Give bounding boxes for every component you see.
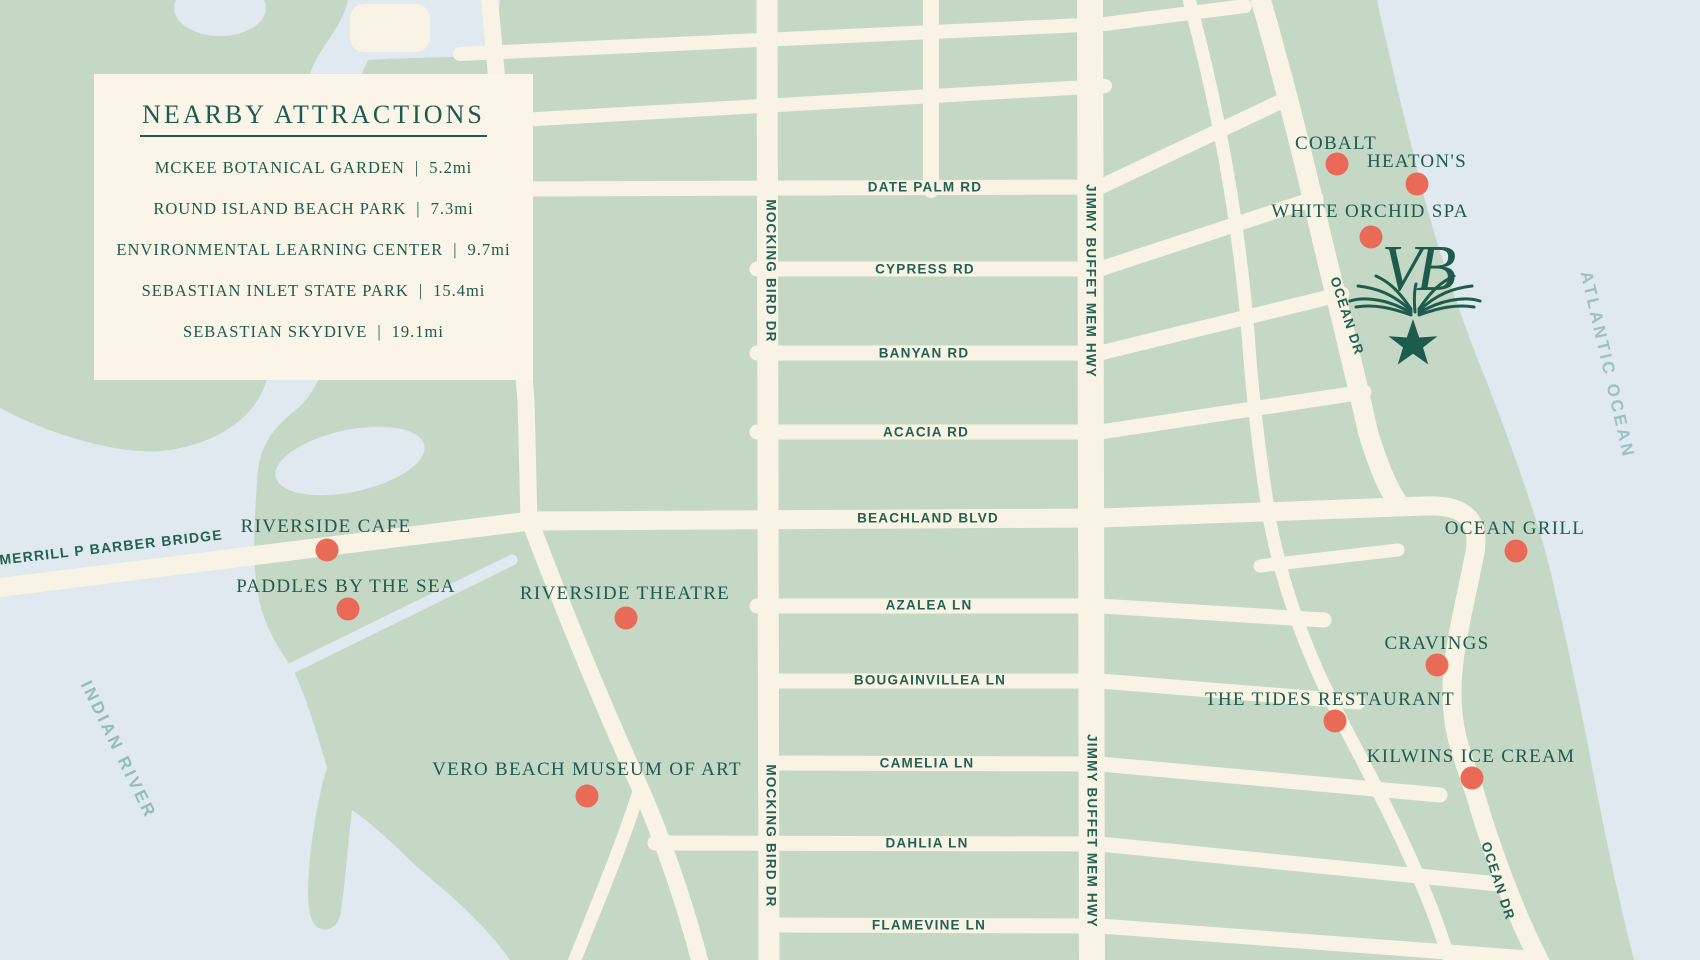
vb-monogram-logo: VB (1382, 231, 1451, 307)
legend-item: ENVIRONMENTAL LEARNING CENTER|9.7mi (94, 240, 533, 260)
legend-title: NEARBY ATTRACTIONS (140, 100, 487, 137)
street-label-flamevine: FLAMEVINE LN (872, 918, 986, 933)
attraction-distance: 5.2mi (429, 158, 472, 177)
poi-dot-tides-restaurant (1324, 710, 1347, 733)
street-label-acacia: ACACIA RD (883, 425, 969, 440)
street-label-azalea: AZALEA LN (886, 598, 973, 613)
separator: | (415, 158, 419, 177)
attraction-name: SEBASTIAN SKYDIVE (183, 322, 367, 341)
attraction-distance: 15.4mi (433, 281, 485, 300)
legend-item: MCKEE BOTANICAL GARDEN|5.2mi (94, 158, 533, 178)
poi-dot-cravings (1426, 654, 1449, 677)
poi-label-riverside-cafe: RIVERSIDE CAFE (241, 516, 412, 538)
attraction-distance: 9.7mi (468, 240, 511, 259)
poi-dot-riverside-cafe (316, 539, 339, 562)
legend-item: ROUND ISLAND BEACH PARK|7.3mi (94, 199, 533, 219)
cream-landmark (350, 4, 430, 52)
street-label-jimmy-buffet-s: JIMMY BUFFET MEM HWY (1085, 734, 1100, 928)
poi-label-kilwins-ice-cream: KILWINS ICE CREAM (1367, 746, 1576, 768)
attraction-name: SEBASTIAN INLET STATE PARK (142, 281, 409, 300)
legend-item: SEBASTIAN SKYDIVE|19.1mi (94, 322, 533, 342)
poi-dot-cobalt (1326, 153, 1349, 176)
legend-item: SEBASTIAN INLET STATE PARK|15.4mi (94, 281, 533, 301)
poi-dot-ocean-grill (1505, 540, 1528, 563)
street-label-camelia: CAMELIA LN (880, 756, 975, 771)
street-label-banyan: BANYAN RD (879, 346, 970, 361)
street-label-mocking-bird-n: MOCKING BIRD DR (764, 199, 779, 342)
poi-label-cravings: CRAVINGS (1384, 633, 1489, 655)
poi-label-tides-restaurant: THE TIDES RESTAURANT (1205, 689, 1455, 711)
attraction-name: ROUND ISLAND BEACH PARK (153, 199, 406, 218)
poi-dot-vero-beach-museum (576, 785, 599, 808)
street-label-beachland: BEACHLAND BLVD (857, 511, 999, 526)
separator: | (416, 199, 420, 218)
poi-label-ocean-grill: OCEAN GRILL (1445, 518, 1585, 540)
poi-label-vero-beach-museum: VERO BEACH MUSEUM OF ART (432, 759, 742, 781)
attraction-name: ENVIRONMENTAL LEARNING CENTER (116, 240, 443, 259)
poi-label-paddles-by-the-sea: PADDLES BY THE SEA (236, 576, 456, 598)
attraction-name: MCKEE BOTANICAL GARDEN (155, 158, 405, 177)
poi-label-heatons: HEATON'S (1367, 151, 1467, 173)
street-label-jimmy-buffet-n: JIMMY BUFFET MEM HWY (1084, 184, 1099, 378)
poi-dot-paddles-by-the-sea (337, 598, 360, 621)
nearby-attractions-legend: NEARBY ATTRACTIONS MCKEE BOTANICAL GARDE… (94, 74, 533, 380)
street-label-mocking-bird-s: MOCKING BIRD DR (764, 764, 779, 907)
separator: | (453, 240, 457, 259)
street-label-bougainvillea: BOUGAINVILLEA LN (854, 673, 1006, 688)
vero-beach-attractions-map: NEARBY ATTRACTIONS MCKEE BOTANICAL GARDE… (0, 0, 1700, 960)
attraction-distance: 7.3mi (431, 199, 474, 218)
poi-dot-white-orchid-spa (1360, 226, 1383, 249)
poi-label-riverside-theatre: RIVERSIDE THEATRE (520, 583, 730, 605)
street-label-date-palm: DATE PALM RD (868, 180, 982, 195)
street-label-dahlia: DAHLIA LN (885, 836, 968, 851)
street-label-cypress: CYPRESS RD (875, 262, 975, 277)
poi-dot-riverside-theatre (615, 607, 638, 630)
separator: | (419, 281, 423, 300)
poi-dot-heatons (1406, 173, 1429, 196)
attraction-distance: 19.1mi (392, 322, 444, 341)
separator: | (377, 322, 381, 341)
poi-dot-kilwins-ice-cream (1461, 767, 1484, 790)
poi-label-white-orchid-spa: WHITE ORCHID SPA (1271, 201, 1468, 223)
